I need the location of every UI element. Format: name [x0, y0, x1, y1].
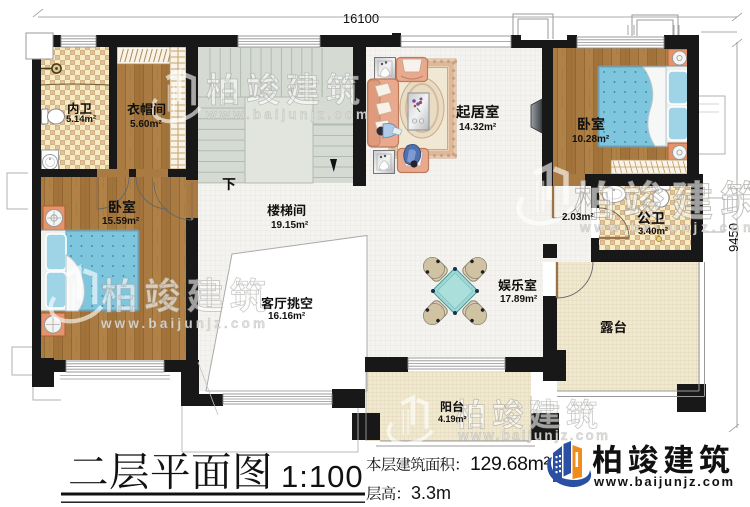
svg-text:10.28m²: 10.28m² [572, 134, 610, 145]
svg-text:16100: 16100 [343, 11, 379, 26]
svg-text:129.68m²: 129.68m² [470, 453, 551, 475]
svg-text:2.03m²: 2.03m² [562, 212, 594, 223]
svg-text:5.14m²: 5.14m² [66, 114, 96, 125]
svg-text:5.60m²: 5.60m² [130, 119, 162, 130]
svg-text:16.16m²: 16.16m² [268, 311, 306, 322]
svg-text:3.3m: 3.3m [411, 483, 451, 503]
svg-text:3.40m²: 3.40m² [638, 226, 668, 237]
svg-text:19.15m²: 19.15m² [271, 220, 309, 231]
svg-text:4.19m²: 4.19m² [438, 414, 467, 424]
svg-text:14.32m²: 14.32m² [459, 122, 497, 133]
svg-text:17.89m²: 17.89m² [500, 294, 538, 305]
svg-text:15.59m²: 15.59m² [102, 216, 140, 227]
svg-text:1:100: 1:100 [281, 459, 364, 494]
